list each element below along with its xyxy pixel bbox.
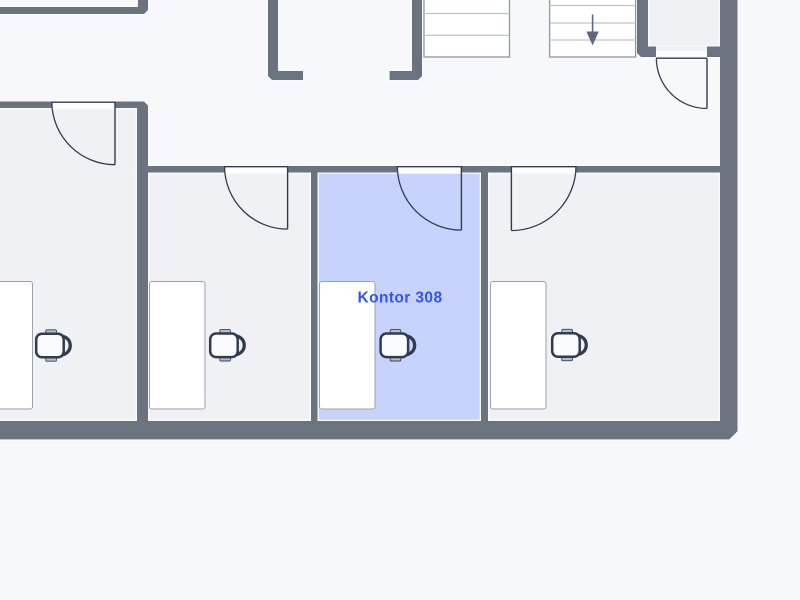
svg-text:Kontor 308: Kontor 308 (358, 290, 443, 307)
